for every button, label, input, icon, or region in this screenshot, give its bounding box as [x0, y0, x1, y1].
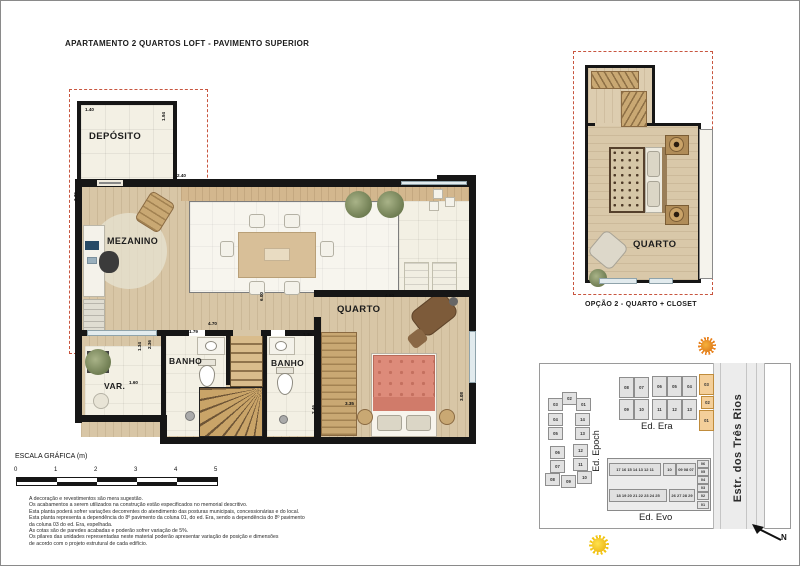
epoch-unit: 11 — [573, 458, 588, 471]
era-unit: 05 — [667, 376, 682, 397]
epoch-unit: 04 — [548, 413, 563, 426]
era-unit: 01 — [699, 410, 714, 431]
epoch-unit: 13 — [575, 427, 590, 440]
epoch-unit: 09 — [561, 475, 576, 488]
era-unit: 04 — [682, 376, 697, 397]
epoch-unit: 07 — [550, 460, 565, 473]
map-unit-layer: 0302010414051306120711080910080706050403… — [1, 1, 799, 565]
era-unit: 06 — [652, 376, 667, 397]
era-unit: 12 — [667, 399, 682, 420]
epoch-unit: 12 — [573, 444, 588, 457]
era-unit: 09 — [619, 399, 634, 420]
evo-unit: 04 — [697, 476, 709, 484]
era-unit: 02 — [701, 396, 714, 409]
era-unit: 13 — [682, 399, 697, 420]
evo-unit: 03 — [697, 484, 709, 492]
epoch-unit: 06 — [550, 446, 565, 459]
era-unit: 03 — [699, 374, 714, 395]
era-unit: 10 — [634, 399, 649, 420]
era-unit: 11 — [652, 399, 667, 420]
era-unit: 07 — [634, 377, 649, 398]
evo-unit: 02 — [697, 492, 709, 500]
epoch-unit: 05 — [548, 427, 563, 440]
epoch-unit: 01 — [576, 398, 591, 411]
evo-unit: 01 — [697, 501, 709, 509]
evo-unit: 06 — [697, 460, 709, 468]
era-unit: 08 — [619, 377, 634, 398]
epoch-unit: 02 — [562, 392, 577, 405]
evo-unit: 05 — [697, 468, 709, 476]
epoch-unit: 03 — [548, 398, 563, 411]
epoch-unit: 10 — [577, 471, 592, 484]
epoch-unit: 08 — [545, 473, 560, 486]
epoch-unit: 14 — [575, 413, 590, 426]
floor-plan-sheet: APARTAMENTO 2 QUARTOS LOFT - PAVIMENTO S… — [0, 0, 800, 566]
